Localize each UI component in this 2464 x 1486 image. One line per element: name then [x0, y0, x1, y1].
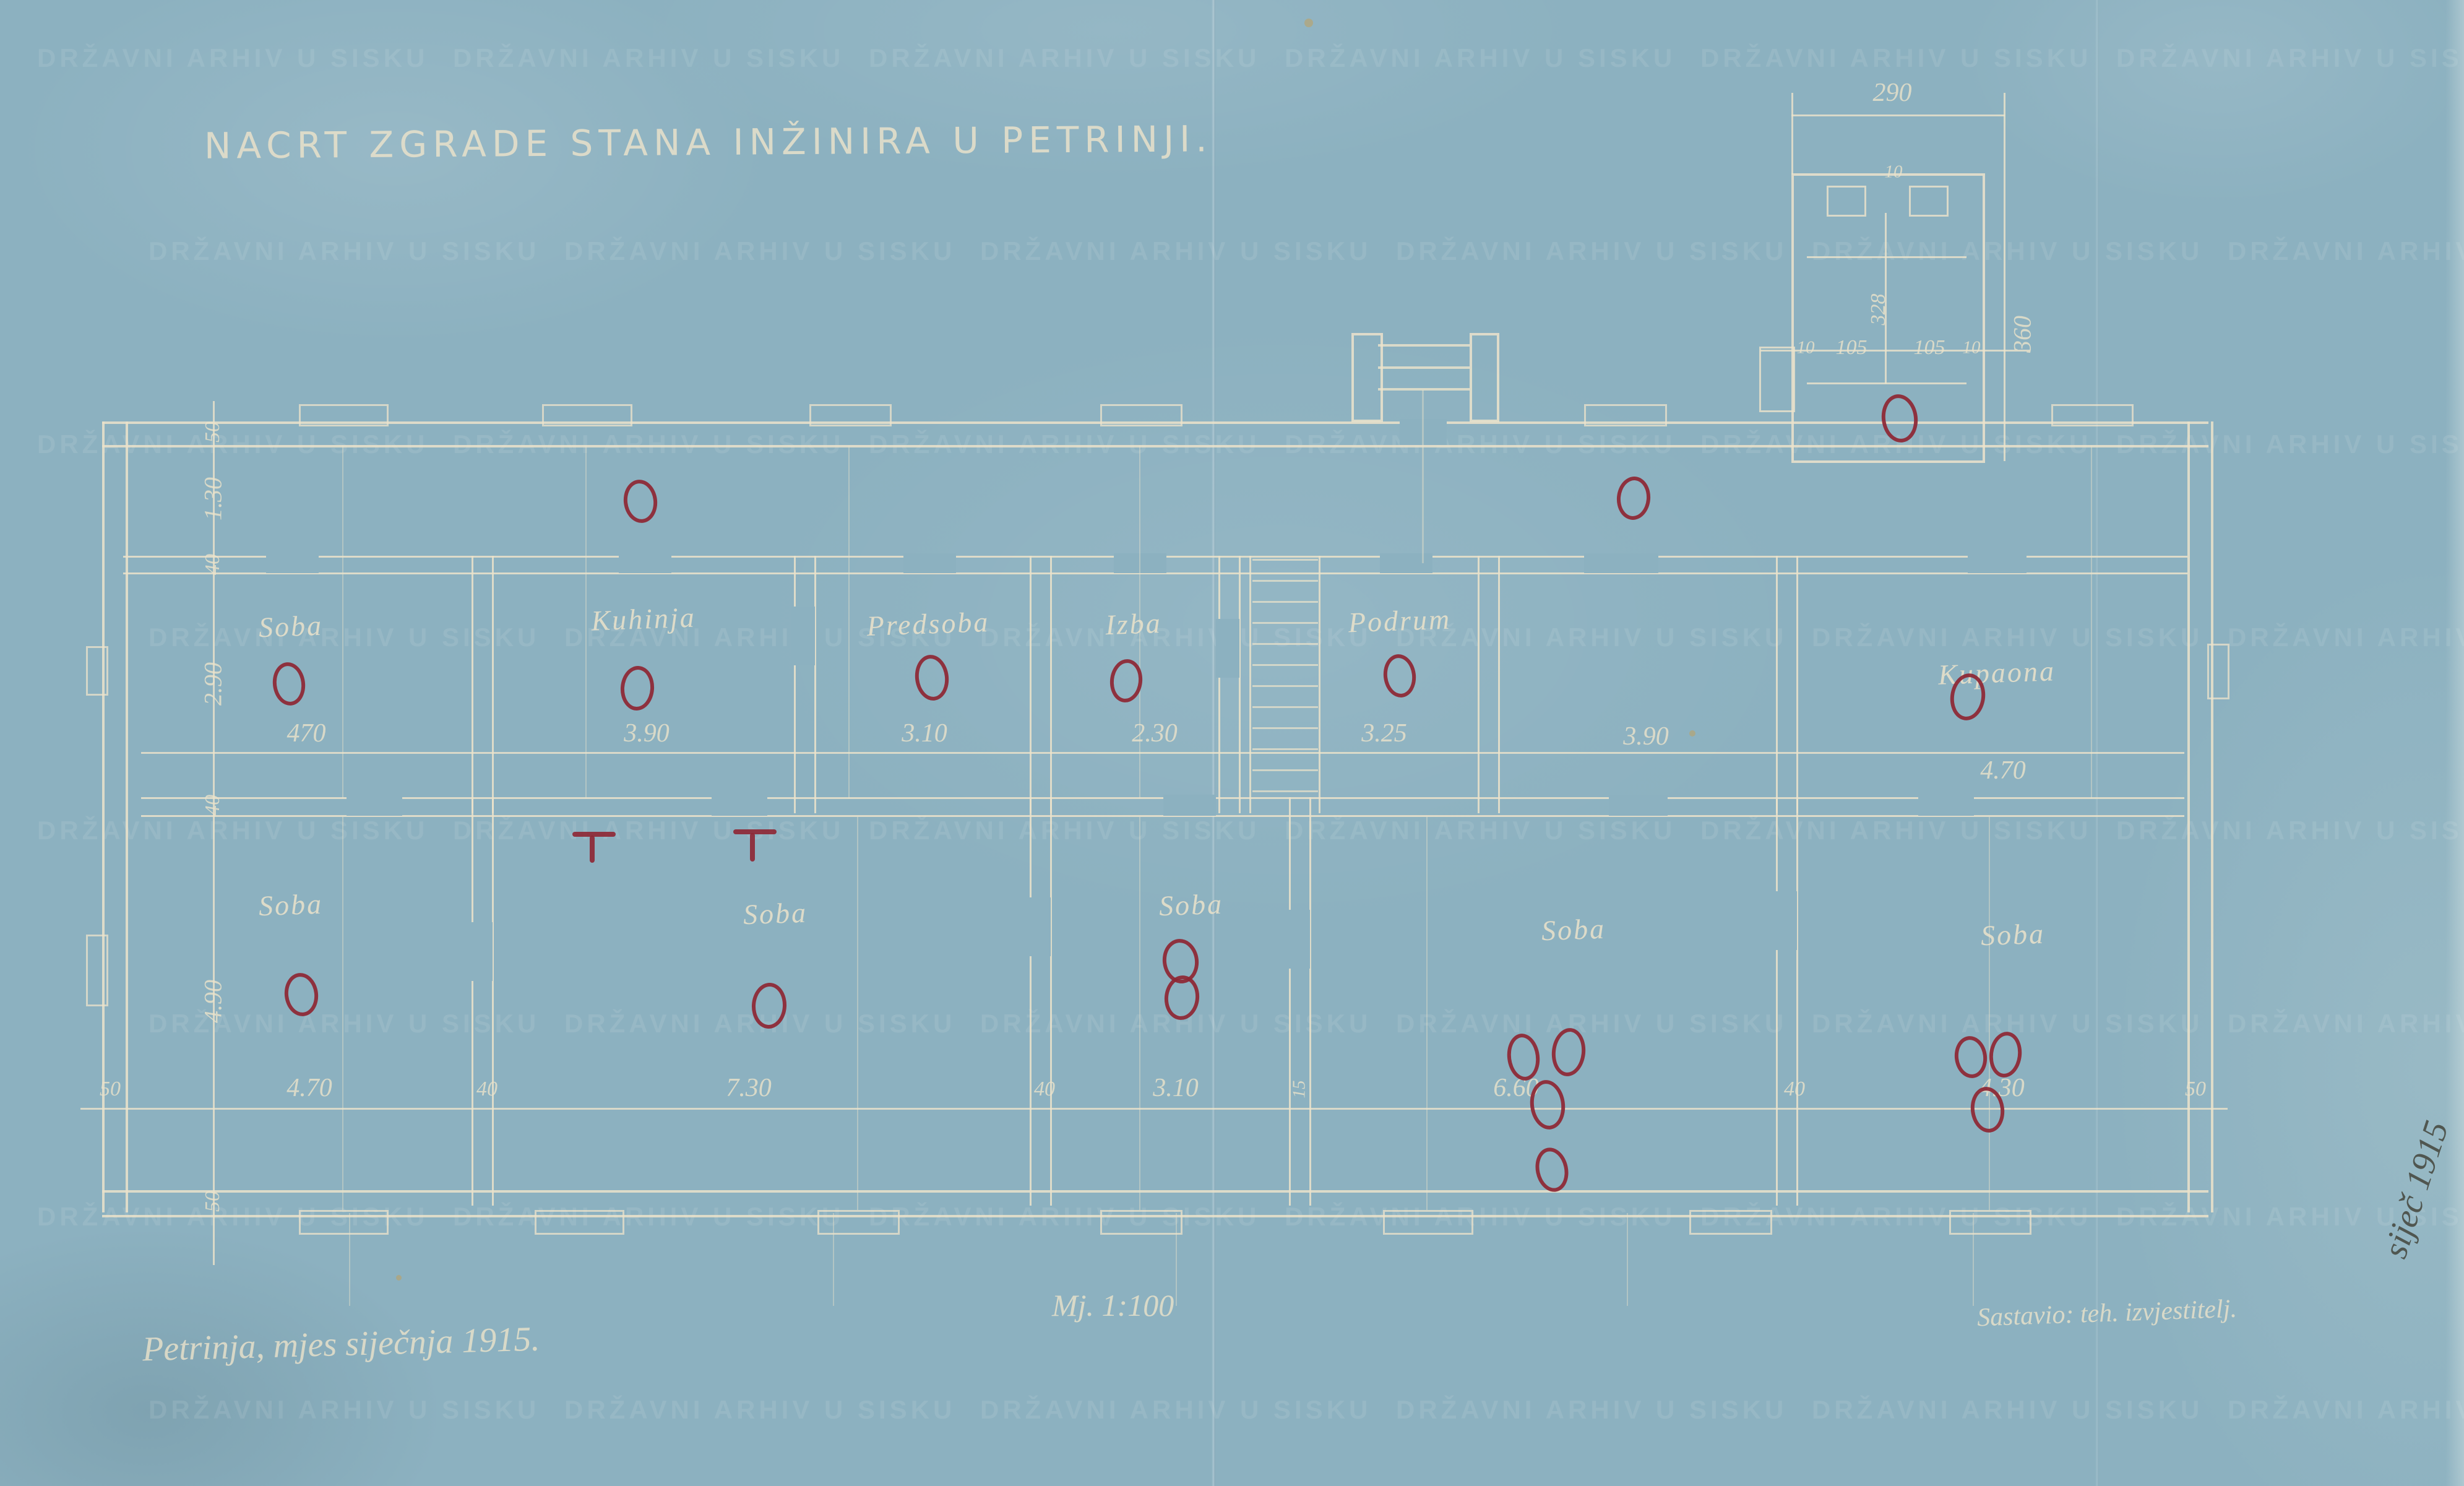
watermark-text: DRŽAVNI ARHIV U SISKU [2228, 623, 2464, 652]
window [2207, 644, 2229, 699]
watermark-text: DRŽAVNI ARHIV U SISKU [1396, 236, 1787, 266]
dim-label: 105 [1914, 336, 1945, 360]
room-label: Izba [1105, 607, 1162, 641]
porch-axis [1422, 390, 1424, 563]
dim-label: 4.70 [1980, 756, 2026, 785]
paper-crease [1212, 0, 1215, 1486]
dim-label: 40 [1784, 1078, 1805, 1101]
red-t-mark [733, 829, 777, 834]
dim-label: 50 [201, 1191, 225, 1212]
room-label: Soba [1980, 917, 2046, 953]
wall-partition [1030, 556, 1052, 813]
foxing-spot [1689, 730, 1695, 737]
dim-label: 50 [201, 421, 225, 443]
watermark-text: DRŽAVNI ARHIV U SISKU [37, 816, 428, 845]
door-gap [469, 922, 493, 981]
dim-label: 7.30 [726, 1073, 772, 1103]
dim-label: 3.90 [1623, 722, 1669, 751]
watermark-text: DRŽAVNI ARHIV U SISKU [2116, 816, 2464, 845]
watermark-text: DRŽAVNI ARHIV U SISKU [564, 236, 955, 266]
room-label: Soba [258, 609, 324, 644]
axis-line [349, 1213, 350, 1306]
watermark-text: DRŽAVNI ARHIV U SISKU [453, 816, 844, 845]
dim-label: 470 [287, 719, 326, 748]
dim-label: 40 [1034, 1078, 1055, 1101]
dim-label: 10 [1963, 338, 1981, 358]
window [809, 404, 892, 426]
watermark-text: DRŽAVNI ARHIV U SISKU [2116, 43, 2464, 73]
dimension-line [80, 1108, 2228, 1110]
dim-label: 290 [1873, 78, 1912, 108]
watermark-text: DRŽAVNI ARHIV U SISKU [1396, 1395, 1787, 1425]
watermark-text: DRŽAVNI ARHIV U SISKU [1812, 1395, 2203, 1425]
axis-line [857, 817, 858, 1210]
wall-partition [1478, 556, 1500, 813]
dim-label: 50 [100, 1078, 121, 1101]
red-t-mark [750, 833, 755, 862]
annex-chimney [1759, 347, 1795, 412]
watermark-text: DRŽAVNI ARHIV U SISKU [1285, 43, 1676, 73]
dim-label: 40 [201, 795, 225, 816]
door-gap [1773, 891, 1797, 950]
room-label: Soba [743, 896, 808, 931]
door-gap [1968, 553, 2027, 573]
wall-partition [472, 797, 494, 1206]
window [817, 1210, 900, 1235]
axis-line [1176, 1213, 1177, 1306]
watermark-text: DRŽAVNI ARHIV U SISKU [149, 236, 540, 266]
door-gap [791, 607, 815, 665]
paper-crease [2095, 0, 2099, 1486]
watermark-text: DRŽAVNI ARHIV U SISKU [1396, 1009, 1787, 1039]
annex-door-niche [1909, 186, 1949, 217]
annex-inner-wall [1807, 382, 1966, 384]
door-gap [1216, 619, 1239, 678]
room-label: Podrum [1348, 603, 1452, 639]
wall-partition [794, 556, 816, 813]
dimension-line [213, 401, 215, 1265]
axis-line [833, 1213, 834, 1306]
window [1584, 404, 1667, 426]
dimension-line [141, 752, 2184, 754]
dim-label: 40 [201, 554, 225, 575]
door-gap [1918, 795, 1974, 816]
porch-step [1378, 366, 1470, 369]
window [1100, 1210, 1182, 1235]
annex-inner-wall [1807, 256, 1966, 258]
watermark-text: DRŽAVNI ARHIV U SISKU [149, 1395, 540, 1425]
watermark-text: DRŽAVNI ARHIV U SISKU [1285, 816, 1676, 845]
door-gap [1286, 910, 1310, 969]
dim-label: 10 [1885, 162, 1903, 183]
drawing-title: NACRT ZGRADE STANA INŽINIRA U PETRINJI. [204, 118, 1213, 166]
window [1383, 1210, 1473, 1235]
dim-label: 15 [1290, 1081, 1310, 1099]
axis-line [1973, 1213, 1974, 1306]
room-label: Soba [258, 888, 324, 923]
door-gap [619, 553, 671, 573]
stairwell-wall [1319, 556, 1320, 813]
wall-partition [1776, 797, 1798, 1206]
door-gap [1584, 553, 1658, 573]
wall-middle [141, 797, 2184, 817]
axis-line [1139, 817, 1140, 1210]
dim-label: 328 [1867, 294, 1890, 326]
window [86, 935, 108, 1006]
dim-label: 40 [476, 1078, 498, 1101]
blueprint-sheet: DRŽAVNI ARHIV U SISKUDRŽAVNI ARHIV U SIS… [0, 0, 2464, 1486]
wall-partition [472, 556, 494, 813]
porch-step [1378, 388, 1470, 391]
watermark-text: DRŽAVNI ARHIV U SISKU [2228, 1009, 2464, 1039]
wall-partition [1289, 797, 1311, 1206]
dim-label: 1.30 [199, 477, 228, 521]
watermark-text: DRŽAVNI ARHIV U SISKU [2228, 236, 2464, 266]
window [299, 1210, 389, 1235]
watermark-text: DRŽAVNI ARHIV U SISKU [869, 816, 1260, 845]
door-gap [1163, 795, 1216, 816]
door-gap [266, 553, 319, 573]
room-label: Soba [1541, 912, 1606, 948]
dim-label: 3.10 [902, 719, 947, 748]
window [86, 646, 108, 696]
wall-partition [1218, 556, 1241, 813]
red-t-mark [590, 836, 595, 863]
door-gap [347, 795, 402, 816]
watermark-text: DRŽAVNI ARHIV U SISKU [2228, 1395, 2464, 1425]
window [1100, 404, 1182, 426]
watermark-text: DRŽAVNI ARHIV U SISKU [869, 43, 1260, 73]
axis-line [1426, 817, 1428, 1210]
dimension-line [1791, 114, 2005, 116]
watermark-text: DRŽAVNI ARHIV U SISKU [1812, 623, 2203, 652]
window [299, 404, 389, 426]
dim-label: 105 [1836, 336, 1867, 360]
dim-label: 2.90 [199, 662, 228, 706]
axis-line [1627, 1213, 1628, 1306]
dim-label: 4.90 [199, 980, 228, 1023]
dim-label: 4.70 [286, 1073, 332, 1103]
dim-label: 2.30 [1132, 719, 1178, 748]
watermark-text: DRŽAVNI ARHIV U SISKU [1396, 623, 1787, 652]
dim-label: 360 [2008, 316, 2037, 353]
room-label: Soba [1158, 888, 1224, 923]
watermark-text: DRŽAVNI ARHIV U SISKU [1700, 43, 2091, 73]
axis-line [342, 817, 343, 1210]
foxing-spot [1304, 19, 1313, 27]
axis-line [342, 446, 343, 798]
door-gap [712, 795, 767, 816]
axis-line [1989, 817, 1990, 1210]
scale-note: Mj. 1:100 [1052, 1287, 1174, 1323]
watermark-text: DRŽAVNI ARHIV U SISKU [37, 43, 428, 73]
room-label: Kuhinja [591, 601, 697, 637]
stairwell-wall [1249, 556, 1251, 813]
axis-line [2091, 446, 2092, 798]
porch-pillar [1470, 333, 1499, 422]
porch-step [1378, 344, 1470, 347]
door-gap [1027, 897, 1051, 956]
wall-partition [1030, 797, 1052, 1206]
window [535, 1210, 624, 1235]
window [542, 404, 632, 426]
watermark-text: DRŽAVNI ARHIV U SISKU [564, 1395, 955, 1425]
axis-line [848, 446, 850, 798]
dim-label: 3.90 [624, 719, 670, 748]
watermark-text: DRŽAVNI ARHIV U SISKU [1700, 816, 2091, 845]
paper-edge-highlight [2445, 0, 2464, 1486]
annex-door-niche [1827, 186, 1866, 217]
foxing-spot [396, 1275, 402, 1281]
wall-partition [1776, 556, 1798, 813]
dim-label: 3.10 [1153, 1073, 1199, 1103]
dim-label: 10 [1797, 338, 1815, 358]
watermark-text: DRŽAVNI ARHIV U SISKU [980, 1395, 1371, 1425]
door-gap [1380, 553, 1432, 573]
dim-label: 50 [2185, 1078, 2206, 1101]
window [2051, 404, 2134, 426]
door-gap [1609, 795, 1668, 816]
watermark-text: DRŽAVNI ARHIV U SISKU [980, 236, 1371, 266]
window [1949, 1210, 2031, 1235]
axis-line [585, 446, 587, 798]
staircase [1252, 559, 1318, 806]
window [1689, 1210, 1772, 1235]
watermark-text: DRŽAVNI ARHIV U SISKU [453, 43, 844, 73]
dim-label: 3.25 [1361, 719, 1407, 748]
dimension-extension [2004, 93, 2005, 461]
door-gap [903, 553, 956, 573]
dimension-extension [1791, 93, 1793, 175]
room-label: Predsoba [866, 605, 990, 642]
